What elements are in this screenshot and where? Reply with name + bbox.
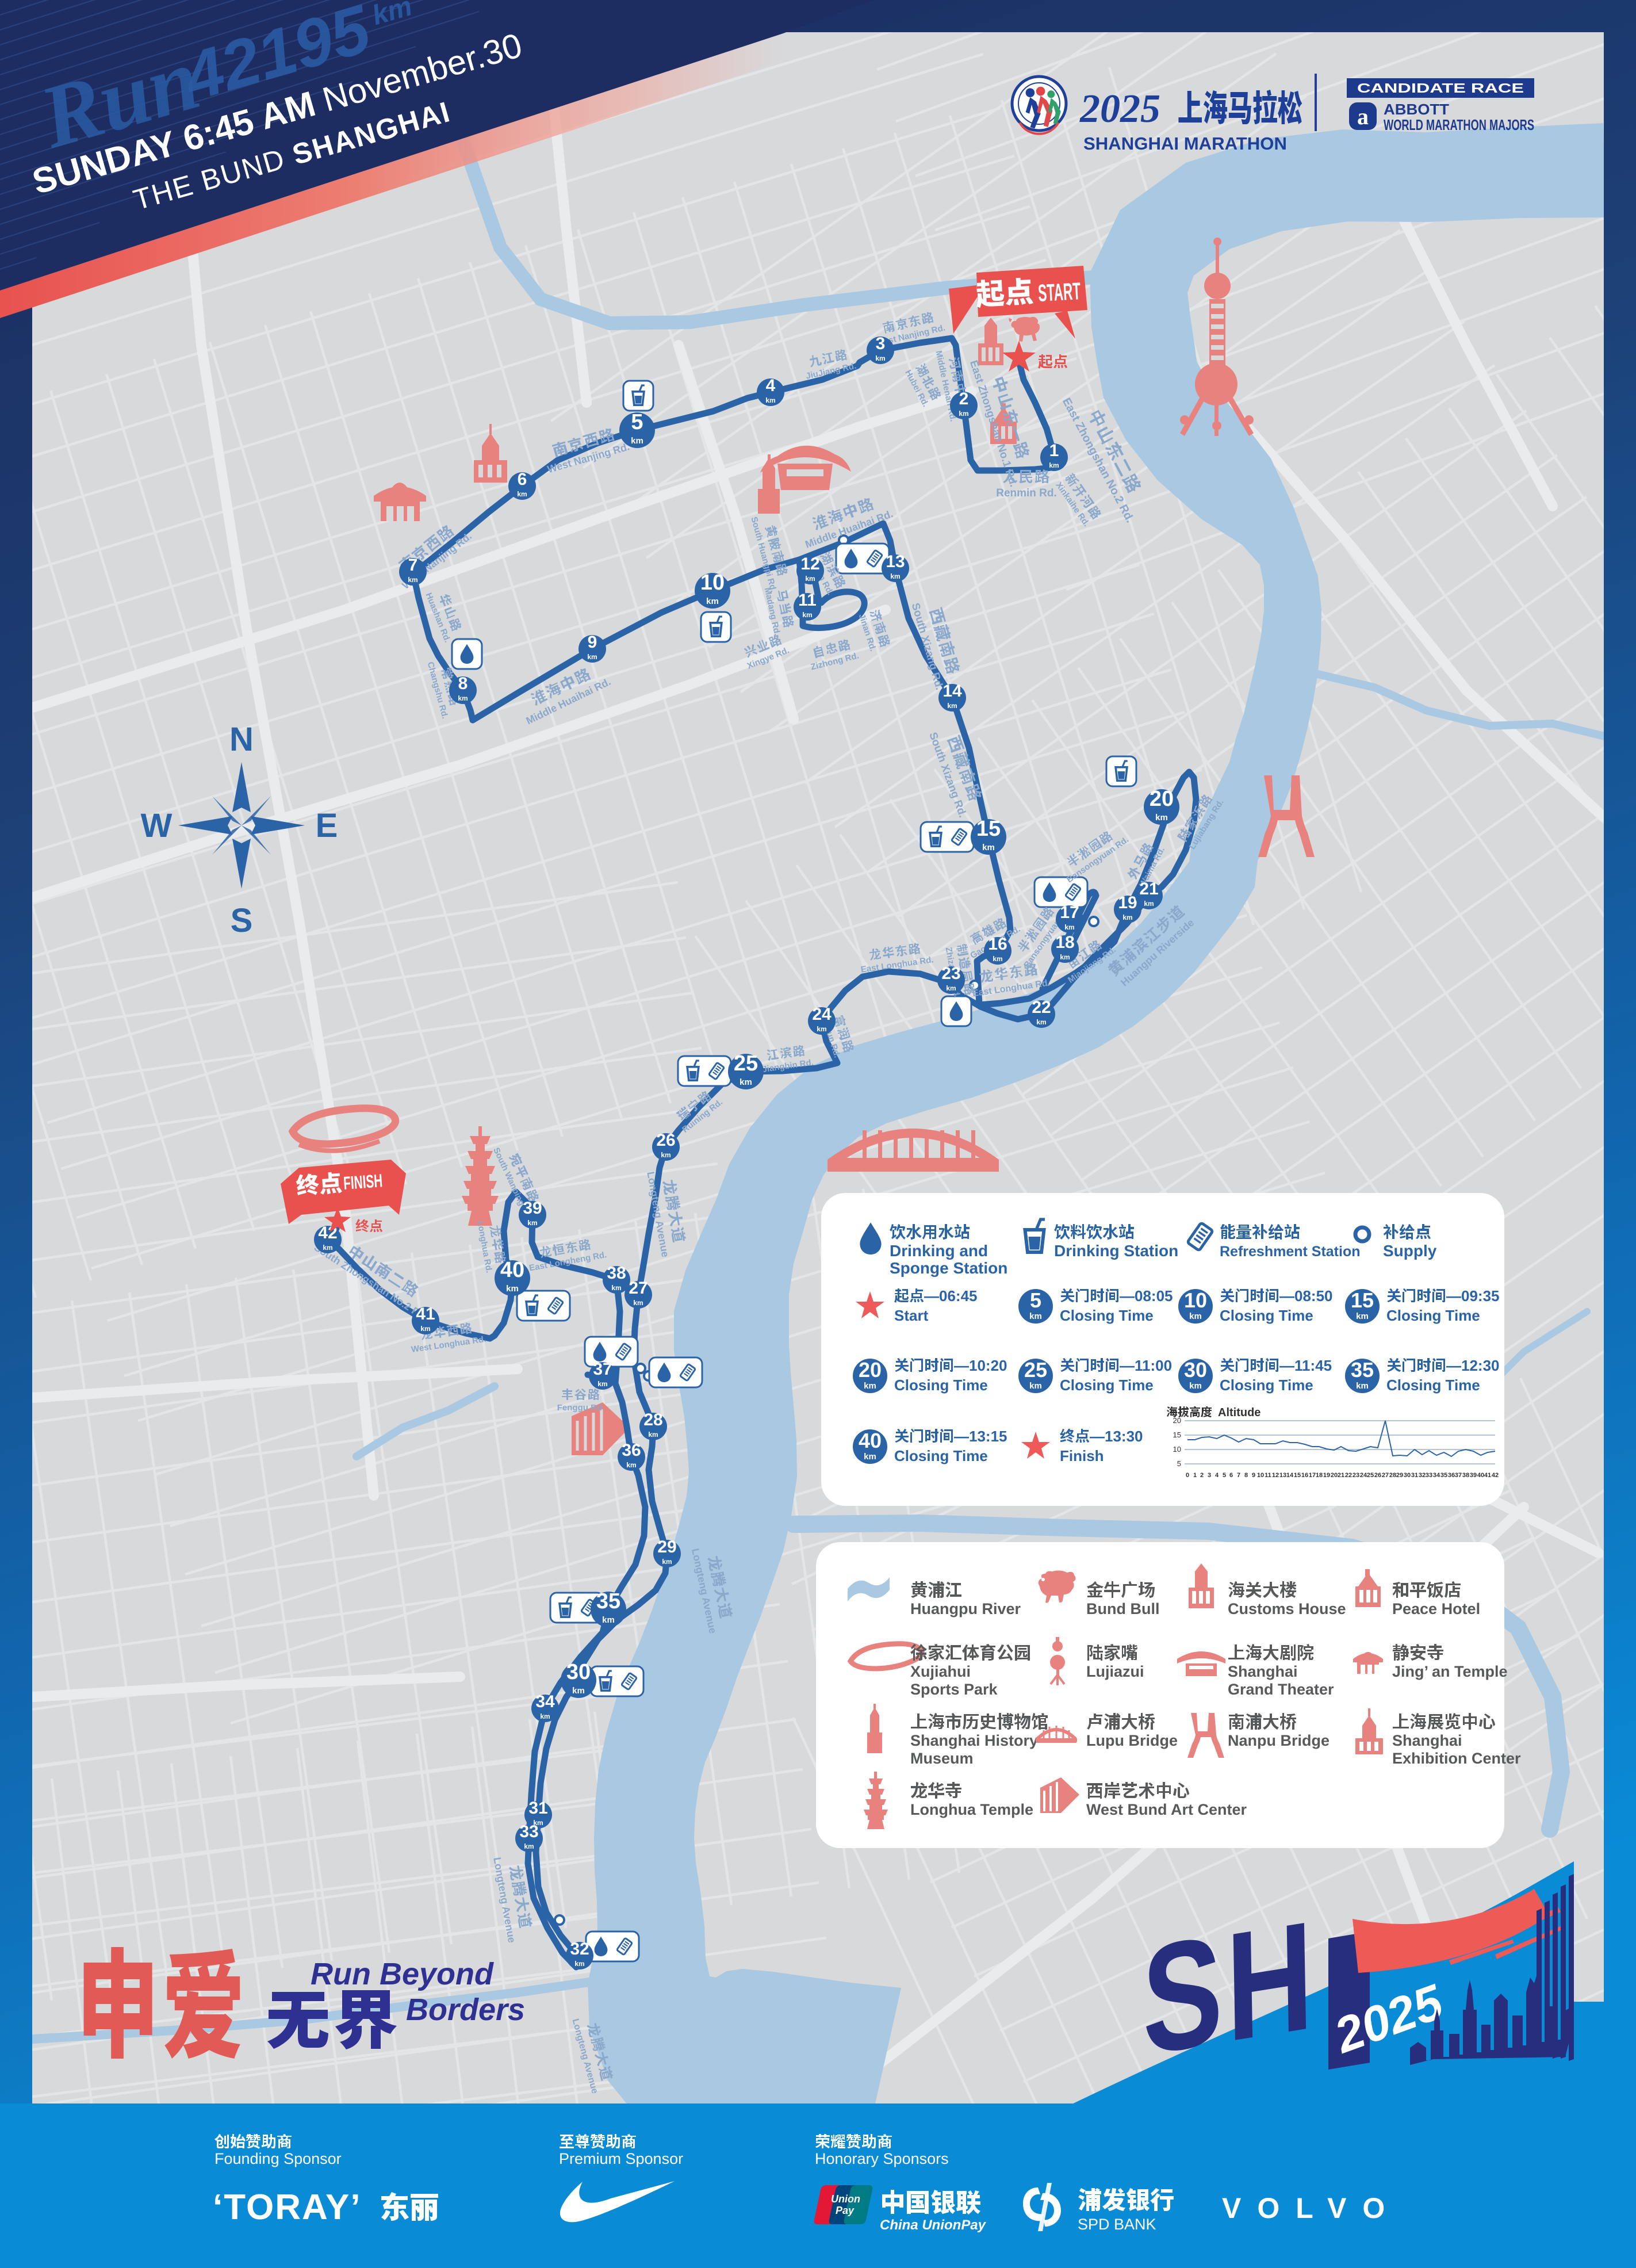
svg-text:39: 39 (523, 1199, 542, 1218)
svg-text:20: 20 (859, 1358, 882, 1382)
svg-text:20: 20 (1331, 1472, 1338, 1479)
svg-text:19: 19 (1323, 1472, 1330, 1479)
svg-text:22: 22 (1032, 998, 1051, 1017)
svg-text:Closing Time: Closing Time (894, 1376, 988, 1394)
svg-text:27: 27 (1382, 1472, 1389, 1479)
svg-text:km: km (506, 1284, 519, 1294)
svg-text:30: 30 (566, 1660, 591, 1684)
svg-text:km: km (802, 611, 812, 619)
svg-text:24: 24 (812, 1005, 832, 1024)
svg-text:km: km (864, 1381, 876, 1391)
svg-text:40: 40 (859, 1429, 882, 1452)
svg-text:9: 9 (588, 633, 597, 652)
svg-text:Run Beyond: Run Beyond (311, 1957, 494, 1991)
svg-text:km: km (527, 1219, 537, 1227)
svg-text:Premium Sponsor: Premium Sponsor (559, 2150, 683, 2167)
svg-text:—10:20: —10:20 (954, 1357, 1007, 1374)
svg-text:23: 23 (941, 964, 960, 983)
svg-text:Sports Park: Sports Park (910, 1681, 998, 1698)
svg-text:38: 38 (1462, 1472, 1469, 1479)
svg-text:VOLVO: VOLVO (1222, 2192, 1401, 2224)
svg-text:11: 11 (1265, 1472, 1271, 1479)
svg-text:14: 14 (1286, 1472, 1294, 1479)
svg-text:Exhibition Center: Exhibition Center (1392, 1750, 1521, 1767)
svg-text:35: 35 (596, 1589, 620, 1613)
svg-text:40: 40 (1477, 1472, 1484, 1479)
svg-text:km: km (946, 984, 956, 992)
svg-text:16: 16 (988, 935, 1007, 954)
svg-text:Start: Start (894, 1307, 929, 1324)
svg-text:37: 37 (1455, 1472, 1462, 1479)
svg-text:Xujiahui: Xujiahui (910, 1663, 971, 1680)
svg-text:km: km (631, 436, 643, 446)
svg-text:Closing Time: Closing Time (1060, 1307, 1154, 1324)
svg-text:17: 17 (1309, 1472, 1316, 1479)
svg-text:26: 26 (656, 1131, 675, 1150)
svg-text:3: 3 (1208, 1472, 1211, 1479)
svg-text:26: 26 (1374, 1472, 1381, 1479)
svg-text:—08:05: —08:05 (1120, 1287, 1173, 1305)
svg-text:6: 6 (518, 470, 527, 489)
svg-text:SPD BANK: SPD BANK (1078, 2216, 1156, 2233)
svg-text:km: km (420, 1325, 430, 1333)
svg-text:km: km (626, 1461, 636, 1469)
svg-text:—11:00: —11:00 (1120, 1357, 1172, 1374)
svg-text:15: 15 (1294, 1472, 1301, 1479)
svg-text:Peace Hotel: Peace Hotel (1392, 1600, 1480, 1617)
svg-text:Pay: Pay (836, 2205, 855, 2216)
svg-text:0: 0 (1186, 1472, 1189, 1479)
svg-text:17: 17 (1060, 903, 1079, 922)
svg-text:Longhua Temple: Longhua Temple (910, 1801, 1033, 1818)
svg-text:25: 25 (1024, 1358, 1047, 1382)
svg-text:20: 20 (1150, 787, 1174, 811)
svg-text:Closing Time: Closing Time (1220, 1376, 1313, 1394)
svg-text:Grand Theater: Grand Theater (1228, 1681, 1334, 1698)
svg-text:km: km (662, 1558, 672, 1566)
svg-text:18: 18 (1316, 1472, 1323, 1479)
svg-text:Refreshment Station: Refreshment Station (1220, 1244, 1360, 1260)
svg-text:34: 34 (1433, 1472, 1440, 1479)
svg-text:7: 7 (1237, 1472, 1240, 1479)
svg-text:9: 9 (1252, 1472, 1255, 1479)
svg-text:27: 27 (629, 1279, 647, 1298)
svg-text:km: km (323, 1244, 332, 1252)
svg-text:km: km (875, 354, 885, 362)
svg-text:km: km (1122, 913, 1132, 921)
svg-text:Renmin Rd.: Renmin Rd. (996, 487, 1057, 499)
svg-text:—06:45: —06:45 (924, 1287, 978, 1305)
svg-text:km: km (602, 1615, 615, 1625)
svg-text:km: km (1036, 1018, 1046, 1026)
svg-text:Lujiazui: Lujiazui (1086, 1663, 1144, 1680)
svg-text:km: km (947, 702, 957, 710)
svg-text:39: 39 (1470, 1472, 1477, 1479)
svg-text:km: km (574, 1960, 584, 1968)
svg-text:30: 30 (1184, 1358, 1207, 1382)
svg-text:Jing’ an Temple: Jing’ an Temple (1392, 1663, 1508, 1680)
svg-text:START: START (1037, 277, 1082, 307)
svg-text:Lupu Bridge: Lupu Bridge (1086, 1732, 1178, 1749)
svg-text:km: km (540, 1712, 550, 1720)
svg-text:Fenggu Rd.: Fenggu Rd. (557, 1403, 605, 1413)
svg-text:Honorary Sponsors: Honorary Sponsors (815, 2150, 949, 2167)
svg-text:km: km (1049, 461, 1059, 469)
svg-text:km: km (982, 843, 995, 852)
svg-text:km: km (458, 694, 468, 702)
svg-text:N: N (229, 721, 254, 758)
svg-text:km: km (517, 490, 527, 498)
svg-text:10: 10 (1173, 1445, 1181, 1454)
svg-text:10: 10 (1184, 1288, 1207, 1312)
svg-text:—13:15: —13:15 (954, 1428, 1007, 1445)
svg-text:km: km (648, 1431, 658, 1439)
svg-text:E: E (316, 807, 338, 844)
svg-text:Drinking and: Drinking and (890, 1242, 988, 1260)
svg-text:—13:30: —13:30 (1090, 1428, 1143, 1445)
svg-text:21: 21 (1139, 879, 1158, 898)
svg-text:29: 29 (657, 1538, 676, 1556)
svg-text:—11:45: —11:45 (1279, 1357, 1332, 1374)
svg-text:km: km (572, 1686, 585, 1696)
svg-text:—12:30: —12:30 (1446, 1357, 1500, 1374)
svg-text:35: 35 (1440, 1472, 1447, 1479)
svg-text:5: 5 (1030, 1288, 1041, 1312)
svg-text:31: 31 (1411, 1472, 1418, 1479)
svg-text:15: 15 (1173, 1431, 1181, 1439)
svg-text:Museum: Museum (910, 1750, 974, 1767)
svg-text:km: km (1189, 1311, 1202, 1321)
svg-text:S: S (231, 902, 253, 939)
svg-text:km: km (661, 1151, 671, 1159)
svg-text:5: 5 (1177, 1459, 1181, 1468)
svg-text:41: 41 (416, 1305, 435, 1324)
svg-text:22: 22 (1345, 1472, 1352, 1479)
svg-text:40: 40 (500, 1258, 524, 1282)
svg-text:FINISH: FINISH (343, 1170, 383, 1194)
svg-text:28: 28 (1389, 1472, 1396, 1479)
svg-text:km: km (597, 1380, 607, 1388)
svg-text:Closing Time: Closing Time (1386, 1376, 1480, 1394)
svg-text:km: km (1144, 900, 1154, 908)
svg-text:Supply: Supply (1383, 1242, 1437, 1260)
svg-text:21: 21 (1338, 1472, 1344, 1479)
svg-text:km: km (1356, 1311, 1369, 1321)
svg-text:W: W (141, 807, 173, 844)
svg-text:Drinking Station: Drinking Station (1054, 1242, 1178, 1260)
svg-text:8: 8 (1244, 1472, 1248, 1479)
svg-text:5: 5 (1223, 1472, 1226, 1479)
svg-text:33: 33 (1426, 1472, 1432, 1479)
svg-text:km: km (805, 575, 815, 583)
svg-text:15: 15 (976, 817, 1001, 841)
svg-text:1: 1 (1193, 1472, 1197, 1479)
svg-text:41: 41 (1484, 1472, 1491, 1479)
svg-text:Nanpu Bridge: Nanpu Bridge (1228, 1732, 1330, 1749)
svg-text:km: km (864, 1452, 876, 1462)
svg-text:13: 13 (886, 552, 905, 571)
svg-text:2: 2 (1200, 1472, 1204, 1479)
svg-text:Altitude: Altitude (1218, 1406, 1260, 1419)
svg-text:—09:35: —09:35 (1446, 1287, 1500, 1305)
svg-text:11: 11 (798, 591, 817, 610)
svg-text:Closing Time: Closing Time (1220, 1307, 1313, 1324)
svg-text:38: 38 (607, 1264, 626, 1283)
svg-text:Founding Sponsor: Founding Sponsor (214, 2150, 342, 2167)
svg-text:Bund Bull: Bund Bull (1086, 1600, 1159, 1617)
svg-text:20: 20 (1173, 1416, 1181, 1425)
svg-text:35: 35 (1351, 1358, 1374, 1382)
svg-text:Closing Time: Closing Time (1060, 1376, 1154, 1394)
svg-text:Customs House: Customs House (1228, 1600, 1346, 1617)
svg-text:km: km (740, 1077, 752, 1087)
svg-text:Huangpu River: Huangpu River (910, 1600, 1021, 1617)
svg-text:Sponge Station: Sponge Station (890, 1259, 1007, 1277)
svg-text:33: 33 (519, 1822, 538, 1841)
svg-text:km: km (633, 1299, 643, 1307)
svg-text:km: km (1356, 1381, 1369, 1391)
svg-text:km: km (765, 396, 775, 404)
svg-text:1: 1 (1049, 441, 1059, 460)
svg-text:‘TORAY’: ‘TORAY’ (213, 2187, 362, 2227)
svg-text:km: km (587, 653, 597, 661)
svg-text:19: 19 (1118, 893, 1137, 912)
svg-text:km: km (611, 1284, 621, 1292)
svg-text:32: 32 (570, 1940, 589, 1959)
svg-text:Shanghai History: Shanghai History (910, 1732, 1038, 1749)
svg-text:SH: SH (1141, 1888, 1319, 2087)
svg-text:3: 3 (876, 334, 886, 353)
svg-text:7: 7 (408, 556, 418, 575)
svg-text:2025: 2025 (1079, 87, 1160, 131)
svg-text:28: 28 (643, 1410, 662, 1429)
svg-text:5: 5 (631, 410, 643, 434)
svg-text:10: 10 (1257, 1472, 1264, 1479)
svg-text:Closing Time: Closing Time (1386, 1307, 1480, 1324)
svg-text:14: 14 (942, 682, 962, 701)
svg-text:25: 25 (1367, 1472, 1374, 1479)
svg-text:30: 30 (1404, 1472, 1411, 1479)
svg-text:km: km (1064, 923, 1074, 931)
svg-text:CANDIDATE RACE: CANDIDATE RACE (1357, 81, 1524, 95)
svg-text:SHANGHAI MARATHON: SHANGHAI MARATHON (1083, 133, 1287, 154)
svg-text:36: 36 (1448, 1472, 1455, 1479)
svg-text:ABBOTT: ABBOTT (1384, 101, 1449, 118)
svg-text:km: km (408, 576, 417, 584)
svg-text:4: 4 (1215, 1472, 1219, 1479)
svg-text:Shanghai: Shanghai (1228, 1663, 1298, 1680)
svg-text:Borders: Borders (406, 1992, 525, 2027)
svg-text:km: km (993, 955, 1002, 963)
svg-text:WORLD MARATHON MAJORS: WORLD MARATHON MAJORS (1384, 116, 1534, 133)
svg-text:15: 15 (1351, 1288, 1374, 1312)
svg-text:29: 29 (1396, 1472, 1403, 1479)
svg-text:10: 10 (700, 571, 725, 595)
svg-text:km: km (1189, 1381, 1202, 1391)
svg-text:12: 12 (1272, 1472, 1279, 1479)
svg-text:a: a (1357, 104, 1369, 129)
svg-text:—08:50: —08:50 (1279, 1287, 1333, 1305)
svg-text:36: 36 (622, 1441, 641, 1460)
svg-text:16: 16 (1301, 1472, 1308, 1479)
svg-text:12: 12 (800, 554, 819, 573)
svg-text:8: 8 (458, 674, 468, 693)
svg-text:32: 32 (1419, 1472, 1426, 1479)
svg-text:6: 6 (1229, 1472, 1233, 1479)
svg-text:31: 31 (528, 1799, 547, 1818)
svg-text:13: 13 (1279, 1472, 1286, 1479)
svg-text:km: km (1029, 1381, 1042, 1391)
svg-text:km: km (1155, 813, 1168, 823)
svg-text:km: km (524, 1842, 534, 1850)
svg-text:4: 4 (766, 376, 776, 395)
svg-text:km: km (959, 410, 968, 418)
svg-text:km: km (706, 596, 719, 606)
svg-text:Shanghai: Shanghai (1392, 1732, 1462, 1749)
svg-text:37: 37 (593, 1360, 612, 1379)
svg-text:23: 23 (1353, 1472, 1359, 1479)
svg-text:18: 18 (1055, 933, 1074, 952)
svg-text:Closing Time: Closing Time (894, 1447, 988, 1464)
svg-text:West Bund Art Center: West Bund Art Center (1086, 1801, 1247, 1818)
svg-text:km: km (1060, 953, 1070, 961)
svg-text:Union: Union (831, 2193, 860, 2205)
svg-text:42: 42 (1492, 1472, 1499, 1479)
svg-text:China UnionPay: China UnionPay (880, 2217, 987, 2233)
svg-text:km: km (1029, 1311, 1042, 1321)
svg-text:2: 2 (959, 389, 969, 408)
svg-text:km: km (817, 1025, 826, 1033)
svg-text:Finish: Finish (1060, 1447, 1104, 1464)
svg-text:25: 25 (734, 1051, 758, 1076)
svg-text:34: 34 (535, 1692, 555, 1711)
svg-text:km: km (890, 572, 900, 580)
